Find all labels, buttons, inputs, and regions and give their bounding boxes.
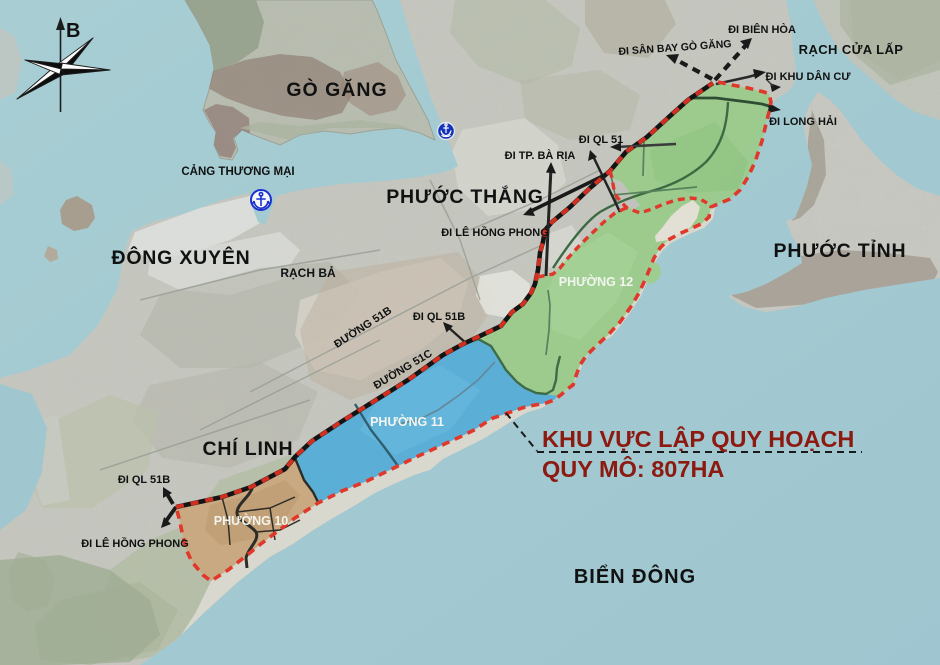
- svg-text:B: B: [66, 20, 80, 42]
- svg-text:ĐI LONG HẢI: ĐI LONG HẢI: [769, 115, 837, 128]
- svg-text:ĐI QL 51B: ĐI QL 51B: [118, 474, 170, 486]
- svg-text:PHƯỜNG 12: PHƯỜNG 12: [559, 274, 634, 289]
- svg-text:ĐI LÊ HỒNG PHONG: ĐI LÊ HỒNG PHONG: [441, 226, 549, 239]
- svg-text:RẠCH BẢ: RẠCH BẢ: [280, 265, 336, 280]
- svg-text:PHƯỜNG 11: PHƯỜNG 11: [370, 414, 444, 429]
- svg-text:ĐI BIÊN HÒA: ĐI BIÊN HÒA: [728, 23, 796, 36]
- svg-text:ĐI KHU DÂN CƯ: ĐI KHU DÂN CƯ: [766, 70, 852, 83]
- svg-text:QUY MÔ: 807HA: QUY MÔ: 807HA: [542, 455, 724, 482]
- svg-text:RẠCH CỬA LẤP: RẠCH CỬA LẤP: [799, 42, 904, 57]
- svg-text:CẢNG THƯƠNG MẠI: CẢNG THƯƠNG MẠI: [181, 165, 294, 178]
- svg-text:ĐI TP. BÀ RỊA: ĐI TP. BÀ RỊA: [505, 149, 576, 162]
- svg-text:PHƯỜNG 10: PHƯỜNG 10: [214, 513, 289, 528]
- svg-text:CHÍ LINH: CHÍ LINH: [203, 437, 294, 460]
- svg-text:ĐÔNG XUYÊN: ĐÔNG XUYÊN: [111, 245, 250, 269]
- svg-text:ĐI QL 51B: ĐI QL 51B: [413, 311, 465, 323]
- svg-text:BIỂN ĐÔNG: BIỂN ĐÔNG: [574, 564, 696, 588]
- svg-text:PHƯỚC THẮNG: PHƯỚC THẮNG: [386, 184, 544, 208]
- svg-text:GÒ GĂNG: GÒ GĂNG: [286, 77, 387, 101]
- svg-text:ĐI QL 51: ĐI QL 51: [579, 134, 623, 146]
- svg-text:PHƯỚC TỈNH: PHƯỚC TỈNH: [774, 238, 907, 262]
- svg-text:ĐI LÊ HỒNG PHONG: ĐI LÊ HỒNG PHONG: [81, 537, 189, 550]
- svg-text:KHU VỰC LẬP QUY HOẠCH: KHU VỰC LẬP QUY HOẠCH: [542, 425, 854, 452]
